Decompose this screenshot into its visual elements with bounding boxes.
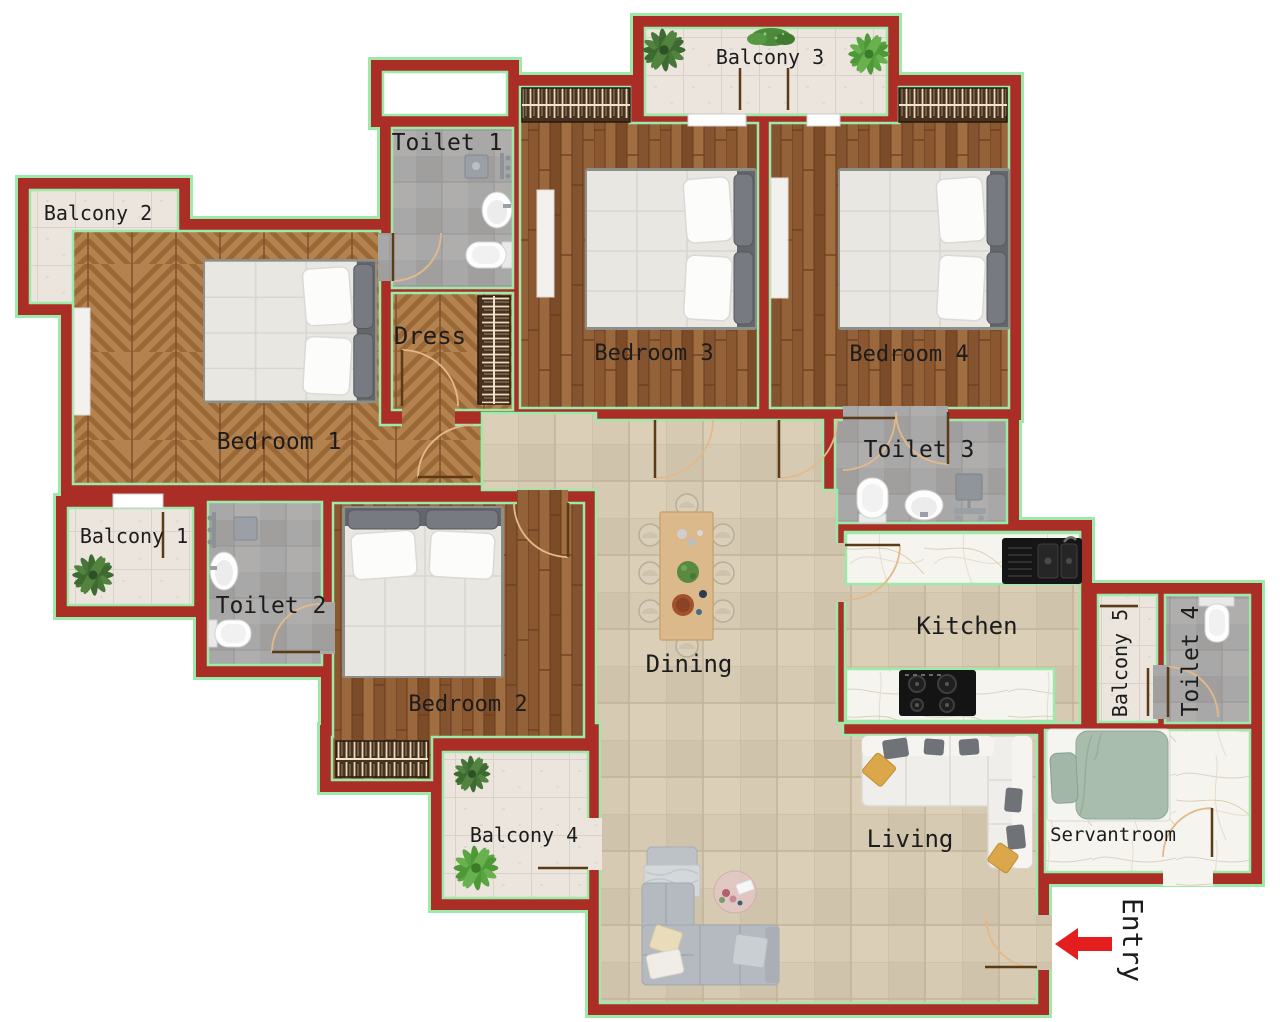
room-label-bedroom-3: Bedroom 3 (594, 341, 713, 366)
room-label-bedroom-1: Bedroom 1 (217, 429, 342, 455)
rug-icon (714, 871, 756, 913)
window (807, 114, 840, 126)
room-label-toilet-1: Toilet 1 (392, 130, 503, 156)
room-label-servantroom: Servantroom (1050, 824, 1176, 846)
bed-icon (585, 168, 757, 330)
room-label-balcony-5: Balcony 5 (1108, 609, 1132, 717)
wardrobe-icon (522, 88, 630, 122)
entry-label: Entry (1116, 898, 1149, 982)
shower-icon (954, 474, 986, 521)
room-label-toilet-4: Toilet 4 (1178, 606, 1204, 717)
room-label-balcony-2: Balcony 2 (44, 201, 152, 225)
stove-icon (899, 670, 976, 716)
bed-icon (203, 259, 377, 403)
sink-icon (482, 192, 512, 228)
floor-plan: Balcony 2 Toilet 1 Balcony 3 Bedroom 3 B… (0, 0, 1280, 1022)
room-label-toilet-2: Toilet 2 (216, 593, 327, 619)
bed-icon (342, 506, 504, 678)
room-label-toilet-3: Toilet 3 (864, 437, 975, 463)
room-label-dining: Dining (646, 650, 733, 678)
shower-icon (465, 153, 511, 179)
window-seat (74, 308, 90, 415)
bed-icon (1047, 729, 1170, 821)
bed-icon (838, 168, 1010, 330)
nightstand (771, 178, 788, 298)
kitchen-sink-icon (1002, 537, 1082, 584)
toilet-icon (857, 478, 888, 523)
wardrobe-icon (336, 741, 428, 777)
wardrobe-icon (899, 88, 1007, 122)
toilet-icon (466, 242, 512, 268)
window (113, 494, 163, 508)
sink-icon (905, 490, 943, 520)
room-label-bedroom-4: Bedroom 4 (849, 342, 968, 367)
sink-icon (210, 552, 238, 590)
entry-marker: Entry (1055, 898, 1149, 982)
room-label-balcony-1: Balcony 1 (80, 524, 188, 548)
room-label-balcony-4: Balcony 4 (470, 823, 578, 847)
wardrobe-icon (478, 296, 510, 404)
room-label-kitchen: Kitchen (916, 612, 1017, 640)
floor-plan-canvas: Balcony 2 Toilet 1 Balcony 3 Bedroom 3 B… (0, 0, 1280, 1022)
nightstand (537, 190, 554, 297)
toilet-icon (208, 620, 251, 647)
room-label-balcony-3: Balcony 3 (716, 45, 824, 69)
room-label-dress: Dress (394, 322, 466, 350)
entry-arrow-icon (1055, 928, 1112, 960)
room-label-bedroom-2: Bedroom 2 (408, 692, 527, 717)
shaft-floor (383, 72, 507, 115)
window (688, 114, 746, 126)
room-label-living: Living (867, 825, 954, 853)
